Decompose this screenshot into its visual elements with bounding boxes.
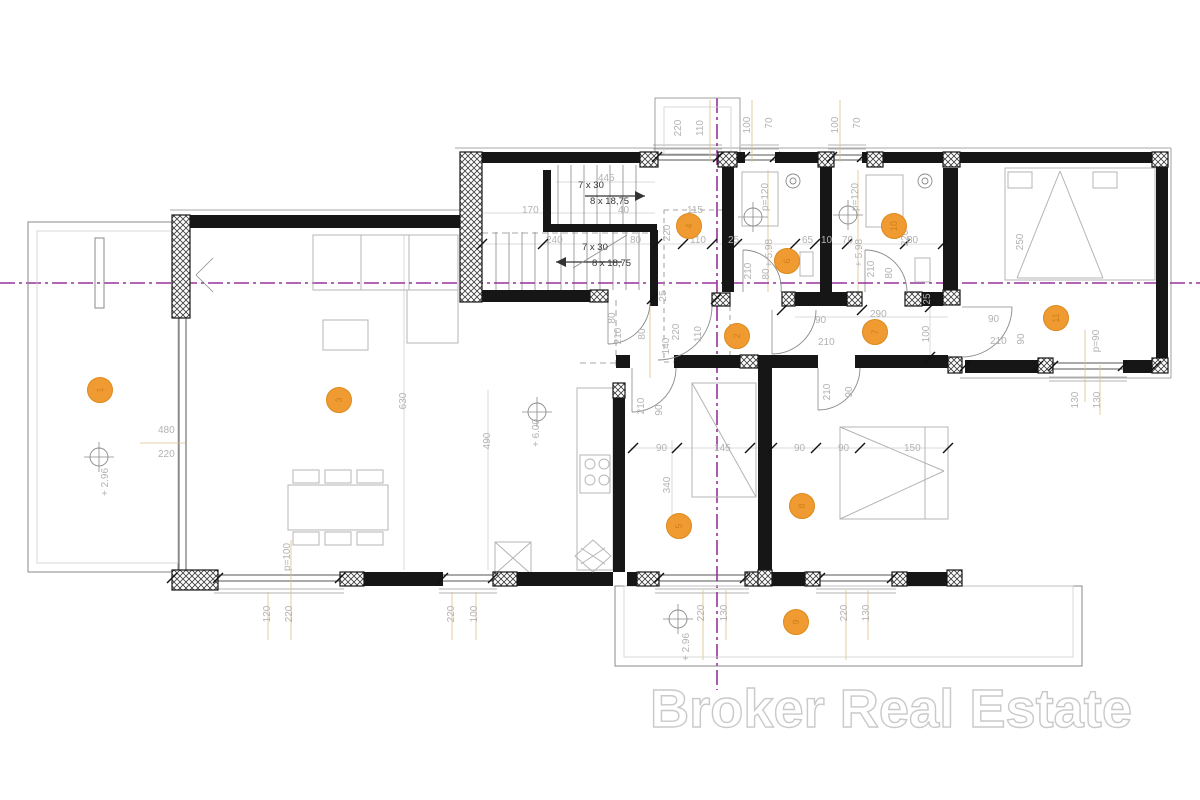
wall-segment — [907, 572, 947, 586]
dimension-label: 220 — [284, 605, 295, 622]
dimension-label: 70 — [764, 117, 775, 129]
hatched-pier — [1038, 358, 1053, 373]
dimension-label: 340 — [662, 476, 673, 493]
dimension-label: 80 — [761, 268, 772, 280]
fixture-circle — [922, 178, 928, 184]
room-number-label: 6 — [782, 258, 792, 263]
plan-line — [196, 258, 213, 275]
dimension-label: 80 — [637, 328, 648, 340]
watermark-text: Broker Real Estate — [650, 679, 1132, 739]
room-number-label: 1 — [95, 387, 105, 392]
hatched-pier — [740, 355, 758, 368]
outline-rect — [357, 470, 383, 483]
dimension-label: 220 — [839, 604, 850, 621]
hatched-pier — [905, 292, 922, 306]
hatched-pier — [943, 290, 960, 305]
wall-segment — [482, 290, 590, 302]
wall-segment — [364, 572, 443, 586]
dimension-label: 70 — [842, 235, 854, 246]
hatched-pier — [947, 570, 962, 586]
dimension-label: 70 — [852, 117, 863, 129]
dimension-label: 7 x 30 — [582, 242, 608, 253]
room-number-label: 8 — [797, 503, 807, 508]
dimension-label: 80 — [630, 235, 642, 246]
fixture-circle — [585, 475, 595, 485]
outline-rect — [357, 532, 383, 545]
wall-segment — [482, 152, 640, 163]
hatched-pier — [172, 215, 190, 318]
dimension-label: 130 — [1092, 391, 1103, 408]
outline-rect — [1093, 172, 1117, 188]
dimension-label: 90 — [656, 443, 668, 454]
room-number-label: 9 — [791, 619, 801, 624]
dimension-label: 210 — [822, 383, 833, 400]
hatched-pier — [818, 152, 834, 167]
wall-segment — [616, 355, 630, 368]
hatched-pier — [867, 152, 883, 167]
wall-segment — [795, 292, 847, 306]
wall-segment — [820, 163, 832, 292]
dimension-label: 220 — [696, 604, 707, 621]
dimension-label: 25 — [658, 290, 669, 302]
dimension-label: 90 — [654, 404, 665, 416]
dimension-label: p=120 — [850, 183, 861, 212]
floor-plan-page: 4457 x 308 x 18,751704011524080110257 x … — [0, 0, 1200, 800]
dimension-label: 100 — [742, 116, 753, 133]
dimension-label: + 2.96 — [100, 468, 111, 497]
dimension-label: 170 — [522, 205, 539, 216]
dimension-label: 130 — [861, 604, 872, 621]
hatched-pier — [847, 292, 862, 306]
dimension-label: 145 — [714, 443, 731, 454]
dimension-label: 10 — [821, 235, 833, 246]
dimension-label: 130 — [719, 604, 730, 621]
outline-rect — [325, 470, 351, 483]
dimension-label: 220 — [662, 224, 673, 241]
dimension-label: p=120 — [760, 183, 771, 212]
dimension-label: 40 — [618, 205, 630, 216]
wall-segment — [613, 398, 625, 572]
wall-segment — [1156, 163, 1168, 363]
dimension-label: 110 — [693, 326, 704, 342]
dimension-label: 220 — [446, 605, 457, 622]
outline-rect — [800, 252, 813, 276]
hatched-pier — [1152, 358, 1168, 373]
dimension-label: 65 — [802, 235, 814, 246]
fixture-circle — [599, 475, 609, 485]
outline-rect — [313, 235, 458, 290]
dimension-label: 630 — [398, 392, 409, 409]
dimension-label: 210 — [818, 337, 835, 348]
dimension-label: 100 — [830, 116, 841, 133]
hatched-pier — [758, 570, 772, 586]
plan-line — [840, 427, 944, 471]
dimension-label: 290 — [870, 309, 887, 320]
fixture-circle — [599, 459, 609, 469]
outline-rect — [288, 485, 388, 530]
outline-rect — [323, 320, 368, 350]
dimension-label: 25 — [728, 235, 740, 246]
fixture-circle — [786, 174, 800, 188]
wall-segment — [960, 152, 1152, 163]
wall-segment — [517, 572, 613, 586]
dimension-label: 80 — [884, 267, 895, 279]
wall-segment — [965, 360, 1038, 373]
dimension-label: 8 x 18,75 — [592, 258, 631, 269]
dimension-label: p=100 — [282, 543, 293, 572]
room-number-label: 4 — [684, 223, 694, 228]
dimension-label: 90 — [844, 386, 855, 398]
dimension-label: 210 — [866, 260, 877, 277]
wall-segment — [883, 152, 943, 163]
fixture-circle — [918, 174, 932, 188]
dimension-label: 120 — [262, 605, 273, 622]
wall-segment — [758, 368, 772, 572]
outline-rect — [1005, 168, 1155, 280]
wall-segment — [543, 224, 657, 232]
hatched-pier — [943, 152, 960, 167]
dimension-label: 250 — [1015, 233, 1026, 250]
dimension-label: + 5.98 — [854, 239, 865, 268]
dimension-label: 100 — [469, 605, 480, 622]
hatched-pier — [637, 572, 659, 586]
dimension-label: 150 — [904, 443, 921, 454]
wall-segment — [543, 170, 551, 231]
dimension-label: 90 — [988, 314, 1000, 325]
dimension-label: p=90 — [1091, 329, 1102, 352]
outline-rect — [580, 455, 610, 493]
dimension-label: 210 — [990, 336, 1007, 347]
plan-line — [840, 471, 944, 519]
outline-rect — [293, 532, 319, 545]
dimension-label: 110 — [695, 120, 706, 136]
dimension-label: 100 — [921, 325, 932, 342]
room-number-label: 3 — [334, 397, 344, 402]
dimension-label: 90 — [1016, 333, 1027, 345]
wall-segment — [190, 215, 460, 228]
dimension-label: 25 — [922, 293, 933, 305]
plan-line — [1017, 171, 1060, 278]
hatched-pier — [460, 152, 482, 302]
dimension-label: 220 — [673, 119, 684, 136]
hatched-pier — [892, 572, 907, 586]
dimension-label: 90 — [815, 315, 827, 326]
dimension-label: 240 — [546, 235, 563, 246]
room-number-label: 11 — [1051, 313, 1061, 322]
outline-rect — [840, 427, 948, 519]
dimension-label: + 5.98 — [764, 239, 775, 268]
dimension-label: 210 — [636, 397, 647, 414]
dimension-label: + 2.96 — [681, 633, 692, 662]
dimension-label: 90 — [794, 443, 806, 454]
wall-segment — [943, 168, 958, 292]
room-number-label: 2 — [732, 333, 742, 338]
outline-rect — [915, 258, 930, 282]
room-number-label: 10 — [889, 221, 899, 231]
dimension-label: 130 — [1070, 391, 1081, 408]
wall-segment — [722, 163, 734, 292]
hatched-pier — [805, 572, 820, 586]
fixture-circle — [585, 459, 595, 469]
floor-plan-drawing: 4457 x 308 x 18,751704011524080110257 x … — [0, 0, 1200, 800]
dimension-label: 210 — [613, 327, 624, 344]
hatched-pier — [172, 570, 218, 590]
dimension-label: + 6.00 — [531, 419, 542, 448]
hatched-pier — [1152, 152, 1168, 167]
plan-generated-layer: 4457 x 308 x 18,751704011524080110257 x … — [0, 98, 1200, 739]
dimension-label: 90 — [838, 443, 850, 454]
hatched-pier — [590, 290, 608, 302]
dimension-label: 490 — [482, 432, 493, 449]
door-arc — [962, 307, 1012, 357]
wall-segment — [627, 572, 637, 586]
fixture-circle — [790, 178, 796, 184]
stair-arrowhead — [635, 191, 645, 201]
hatched-pier — [782, 292, 795, 306]
dimension-label: 480 — [158, 425, 175, 436]
dimension-label: 220 — [158, 449, 175, 460]
dimension-label: 220 — [671, 323, 682, 340]
dimension-label: 80 — [607, 312, 618, 324]
dimension-label: 7 x 30 — [578, 180, 604, 191]
plan-line — [692, 383, 756, 497]
room-number-label: 5 — [674, 523, 684, 528]
wall-segment — [855, 355, 948, 368]
room-number-label: 7 — [870, 329, 880, 334]
outline-rect — [293, 470, 319, 483]
dimension-label: 210 — [743, 262, 754, 279]
plan-line — [1060, 171, 1103, 278]
hatched-pier — [613, 383, 625, 398]
outline-rect — [95, 238, 104, 308]
outline-rect — [407, 290, 458, 343]
outline-rect — [1008, 172, 1032, 188]
outline-rect — [325, 532, 351, 545]
